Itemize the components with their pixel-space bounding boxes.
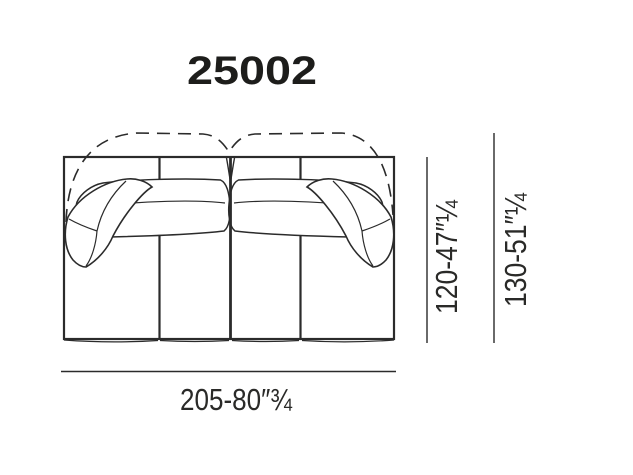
depth-dimension-label: 120-47″¼ (429, 199, 464, 314)
seat-front-edge-curves (64, 340, 394, 342)
product-code: 25002 (187, 49, 317, 93)
sofa-technical-drawing-canvas: 25002 205-80″¾ 120-47″¼ 130-5 (0, 0, 633, 475)
overall-depth-dimension-label: 130-51″¼ (498, 192, 533, 307)
catalog-diagram-page: 25002 205-80″¾ 120-47″¼ 130-5 (0, 0, 633, 475)
width-dimension-label: 205-80″¾ (180, 382, 293, 417)
